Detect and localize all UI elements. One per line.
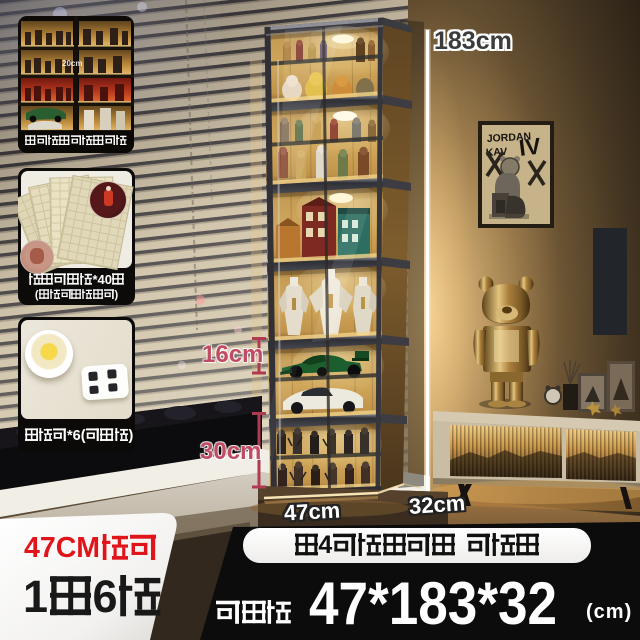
svg-text:20cm: 20cm [62, 59, 82, 68]
svg-text:IV: IV [517, 132, 542, 161]
